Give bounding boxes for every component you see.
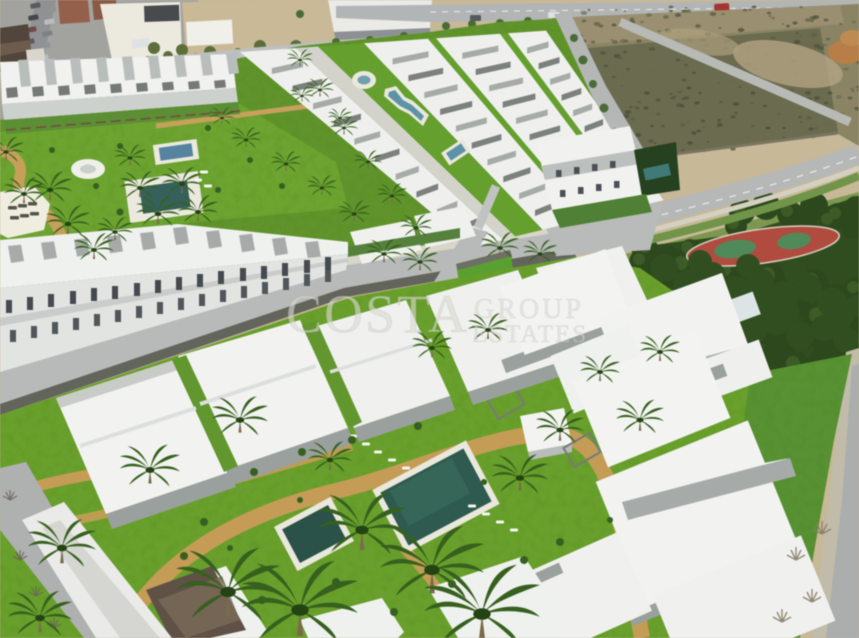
svg-text:ESTATES: ESTATES [472,321,588,348]
svg-text:COSTA: COSTA [286,284,469,344]
